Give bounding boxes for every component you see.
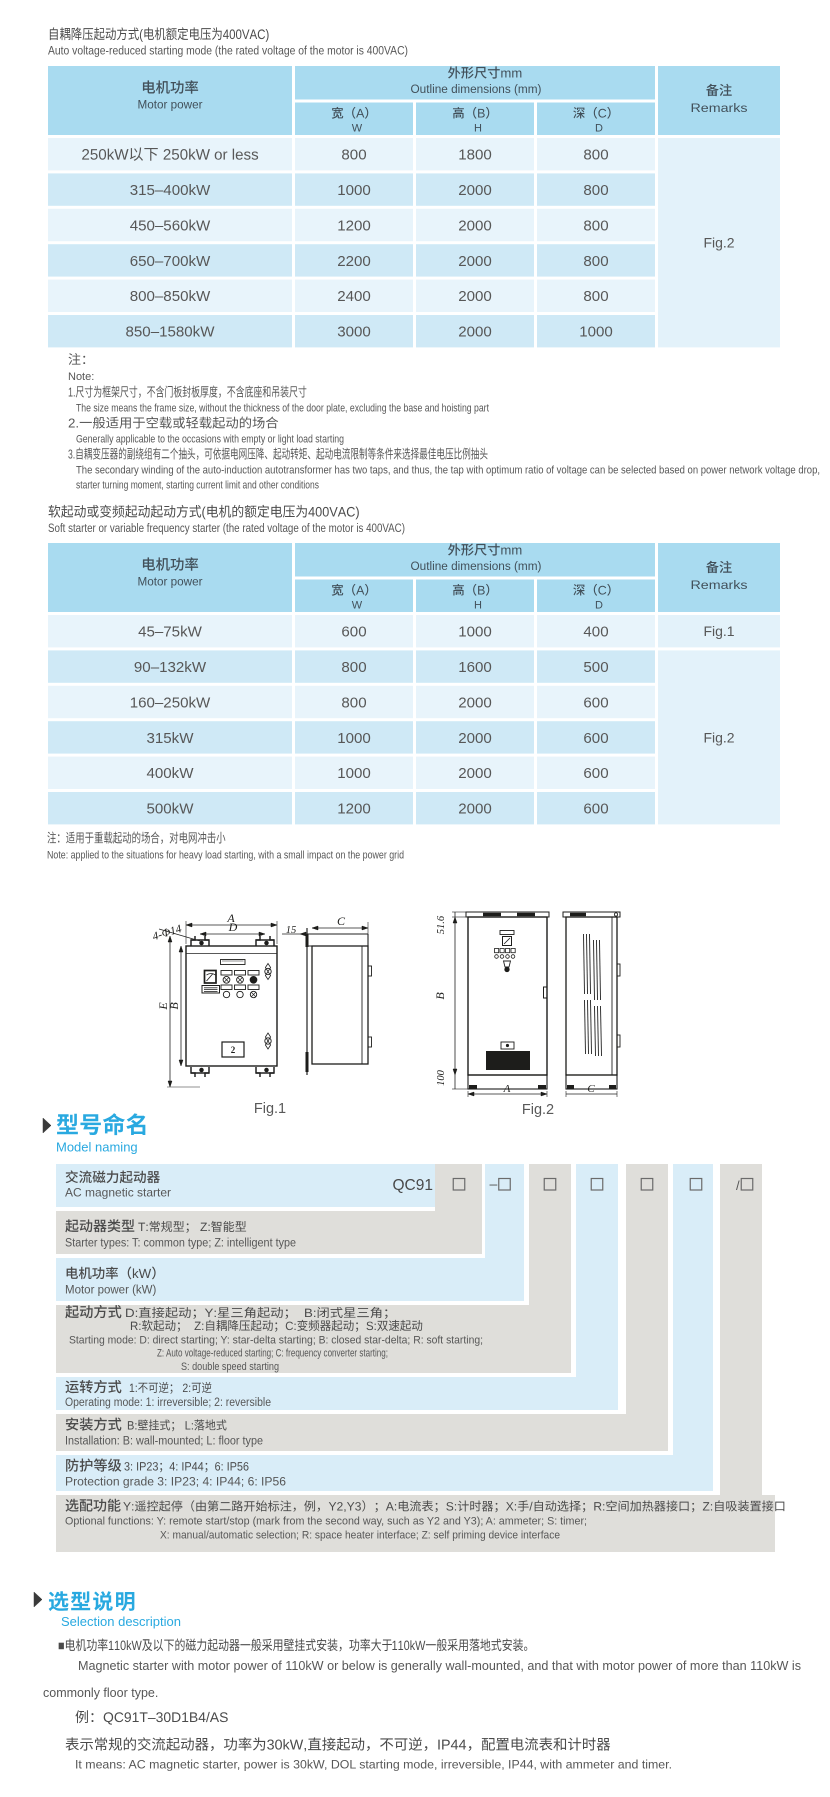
svg-text:Motor power (kW): Motor power (kW) xyxy=(65,1285,157,1297)
svg-text:90–132kW: 90–132kW xyxy=(134,659,207,676)
svg-text:Auto voltage-reduced starting: Auto voltage-reduced starting mode (the … xyxy=(48,44,408,58)
svg-text:800: 800 xyxy=(341,147,366,164)
svg-text:400kW: 400kW xyxy=(147,765,195,782)
svg-text:1200: 1200 xyxy=(337,217,371,234)
svg-text:800: 800 xyxy=(583,253,608,270)
svg-text:1200: 1200 xyxy=(337,801,371,818)
svg-text:2000: 2000 xyxy=(458,253,492,270)
svg-text:600: 600 xyxy=(583,730,608,747)
svg-text:It means: AC magnetic starter,: It means: AC magnetic starter, power is … xyxy=(75,1758,672,1772)
svg-text:Fig.1: Fig.1 xyxy=(254,1101,286,1117)
svg-text:2: 2 xyxy=(231,1045,236,1055)
svg-text:2000: 2000 xyxy=(458,182,492,199)
svg-text:Z: Auto voltage-reduced starti: Z: Auto voltage-reduced starting; C: fre… xyxy=(157,1348,388,1360)
svg-text:Selection description: Selection description xyxy=(61,1614,181,1629)
svg-text:100: 100 xyxy=(436,1069,447,1086)
svg-text:Generally applicable to the oc: Generally applicable to the occasions wi… xyxy=(76,434,344,446)
svg-text:315kW: 315kW xyxy=(147,730,195,747)
svg-text:C: C xyxy=(337,914,346,928)
svg-text:2200: 2200 xyxy=(337,253,371,270)
svg-text:2400: 2400 xyxy=(337,288,371,305)
svg-text:1000: 1000 xyxy=(458,624,492,641)
svg-text:500: 500 xyxy=(583,659,608,676)
svg-text:800: 800 xyxy=(583,217,608,234)
svg-text:2000: 2000 xyxy=(458,217,492,234)
svg-text:500kW: 500kW xyxy=(147,801,195,818)
svg-text:400: 400 xyxy=(583,624,608,641)
svg-text:45–75kW: 45–75kW xyxy=(138,624,203,641)
svg-text:commonly floor type.: commonly floor type. xyxy=(43,1686,158,1700)
svg-text:B: B xyxy=(433,992,447,1000)
svg-text:D: D xyxy=(595,600,603,612)
svg-text:B: B xyxy=(167,1002,181,1010)
svg-text:1600: 1600 xyxy=(458,659,492,676)
svg-text:Soft starter or variable frequ: Soft starter or variable frequency start… xyxy=(48,521,405,535)
svg-text:800: 800 xyxy=(583,147,608,164)
svg-text:–: – xyxy=(490,1176,498,1192)
svg-text:Motor power: Motor power xyxy=(138,100,203,112)
svg-text:starter turning moment, starti: starter turning moment, starting current… xyxy=(76,480,319,492)
svg-text:800: 800 xyxy=(341,694,366,711)
svg-text:D: D xyxy=(228,920,238,934)
svg-text:Motor power: Motor power xyxy=(138,577,203,589)
svg-text:800: 800 xyxy=(583,288,608,305)
svg-text:Starting mode: D: direct start: Starting mode: D: direct starting; Y: st… xyxy=(69,1335,483,1347)
svg-text:Fig.2: Fig.2 xyxy=(522,1102,554,1118)
svg-text:800–850kW: 800–850kW xyxy=(130,288,211,305)
svg-text:2000: 2000 xyxy=(458,730,492,747)
svg-text:Operating mode: 1: irreversibl: Operating mode: 1: irreversible; 2: reve… xyxy=(65,1397,271,1409)
svg-text:3000: 3000 xyxy=(337,324,371,341)
svg-text:Fig.2: Fig.2 xyxy=(703,235,734,251)
svg-text:The size means the frame size,: The size means the frame size, without t… xyxy=(76,403,489,415)
svg-text:600: 600 xyxy=(583,765,608,782)
svg-text:600: 600 xyxy=(583,694,608,711)
svg-text:W: W xyxy=(352,123,363,135)
svg-text:Protection grade 3: IP23; 4:: Protection grade 3: IP23; 4: IP44; 6: IP… xyxy=(65,1477,286,1489)
svg-text:Model naming: Model naming xyxy=(56,1140,138,1155)
svg-text:X: manual/automatic selection;: X: manual/automatic selection; R: space … xyxy=(160,1530,560,1542)
svg-text:800: 800 xyxy=(583,182,608,199)
svg-text:1000: 1000 xyxy=(337,730,371,747)
svg-text:Note:: Note: xyxy=(68,371,94,383)
svg-text:160–250kW: 160–250kW xyxy=(130,694,211,711)
svg-text:2000: 2000 xyxy=(458,288,492,305)
svg-text:2000: 2000 xyxy=(458,765,492,782)
svg-text:650–700kW: 650–700kW xyxy=(130,253,211,270)
svg-text:W: W xyxy=(352,600,363,612)
svg-text:2000: 2000 xyxy=(458,694,492,711)
svg-text:850–1580kW: 850–1580kW xyxy=(126,324,216,341)
svg-text:450–560kW: 450–560kW xyxy=(130,217,211,234)
svg-text:Outline dimensions (mm): Outline dimensions (mm) xyxy=(411,559,542,573)
svg-text:315–400kW: 315–400kW xyxy=(130,182,211,199)
svg-text:1000: 1000 xyxy=(579,324,613,341)
svg-text:Starter types: T: common type;: Starter types: T: common type; Z: intell… xyxy=(65,1238,296,1250)
svg-text:/: / xyxy=(736,1178,740,1193)
svg-text:AC magnetic starter: AC magnetic starter xyxy=(65,1186,171,1200)
svg-text:2000: 2000 xyxy=(458,324,492,341)
svg-text:Optional functions: Y: remote: Optional functions: Y: remote start/stop… xyxy=(65,1516,587,1528)
svg-text:H: H xyxy=(474,600,482,612)
svg-text:Fig.1: Fig.1 xyxy=(703,623,734,639)
svg-text:H: H xyxy=(474,123,482,135)
svg-text:D: D xyxy=(595,123,603,135)
svg-text:The secondary winding of the a: The secondary winding of the auto-induct… xyxy=(76,465,820,477)
svg-text:Remarks: Remarks xyxy=(691,101,748,115)
svg-text:1000: 1000 xyxy=(337,765,371,782)
svg-text:C: C xyxy=(587,1083,595,1095)
svg-text:S: double speed starting: S: double speed starting xyxy=(181,1361,279,1373)
svg-text:Installation: B: wall-mounted;: Installation: B: wall-mounted; L: floor … xyxy=(65,1436,263,1448)
svg-text:600: 600 xyxy=(583,801,608,818)
svg-text:QC91: QC91 xyxy=(393,1177,434,1194)
svg-text:Magnetic starter with motor po: Magnetic starter with motor power of 110… xyxy=(78,1659,801,1673)
svg-text:51.6: 51.6 xyxy=(436,915,447,934)
svg-text:Note: applied to the situation: Note: applied to the situations for heav… xyxy=(47,850,404,862)
svg-text:600: 600 xyxy=(341,624,366,641)
svg-text:A: A xyxy=(503,1083,511,1095)
svg-text:Remarks: Remarks xyxy=(691,578,748,592)
svg-text:Outline dimensions (mm): Outline dimensions (mm) xyxy=(411,82,542,96)
svg-text:800: 800 xyxy=(341,659,366,676)
svg-text:Fig.2: Fig.2 xyxy=(703,729,734,745)
svg-text:1800: 1800 xyxy=(458,147,492,164)
svg-text:1000: 1000 xyxy=(337,182,371,199)
svg-text:2000: 2000 xyxy=(458,801,492,818)
